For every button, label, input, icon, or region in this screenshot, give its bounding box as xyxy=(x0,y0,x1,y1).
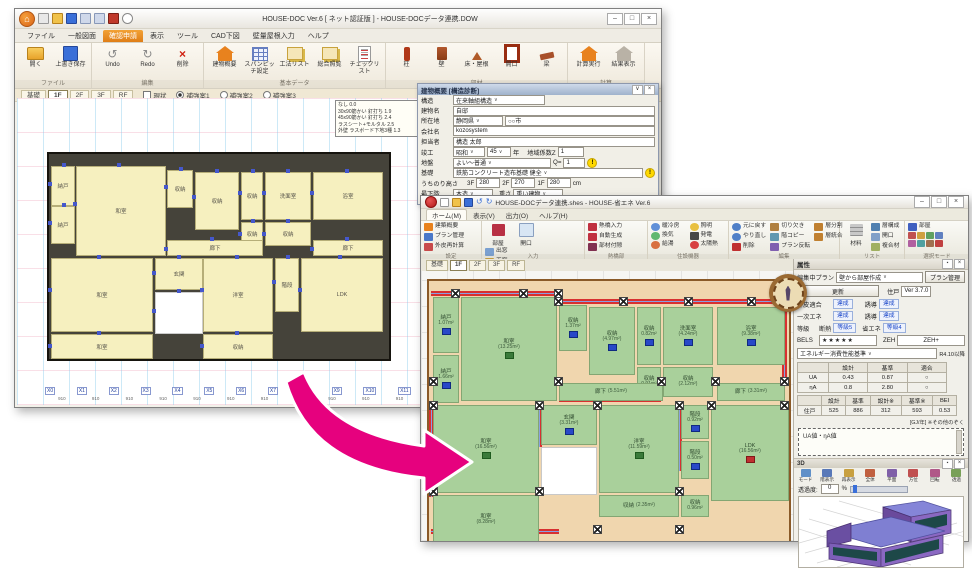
room[interactable]: 階段0.50m² xyxy=(681,441,709,479)
ribbon-group-file: 開く 上書き保存 ファイル xyxy=(15,43,92,88)
equipment-icon xyxy=(691,463,700,470)
flag-icon xyxy=(588,243,597,251)
notch-button[interactable]: 切り欠き xyxy=(770,222,810,231)
room[interactable]: 玄関(3.31m²) xyxy=(541,405,597,445)
layer-split-button[interactable]: 層分割 xyxy=(814,222,842,231)
layer-structure-button[interactable]: 層構成 xyxy=(871,222,899,231)
redo-icon[interactable]: ↻ xyxy=(486,196,493,208)
folder-icon xyxy=(27,47,44,60)
new-file-icon[interactable] xyxy=(38,13,49,24)
mode-icon[interactable] xyxy=(917,240,925,247)
person-input[interactable]: 構造 太郎 xyxy=(453,137,655,147)
joint-marker xyxy=(519,289,528,298)
tab-tools[interactable]: ツール xyxy=(171,30,204,42)
back-window-title: HOUSE-DOC Ver.6 [ ネット認証版 ] - HOUSE-DOCデー… xyxy=(136,14,604,24)
composite-icon xyxy=(871,243,880,251)
layer-icon xyxy=(871,223,880,231)
show-results-button[interactable]: 結果表示 xyxy=(607,45,640,69)
opening-icon xyxy=(871,233,880,241)
era-select[interactable]: 昭和∨ xyxy=(453,147,485,157)
layers-icon xyxy=(850,224,863,236)
company-input[interactable]: kozosystem xyxy=(453,126,655,136)
ua-value-box[interactable]: UA値・ηA値 xyxy=(798,428,964,456)
front-titlebar: ↺ ↻ HOUSE-DOCデータ連携.shes - HOUSE-省エネ Ver.… xyxy=(421,196,968,209)
roof-icon xyxy=(472,52,482,60)
joint-marker xyxy=(711,377,720,386)
tab-kakunin-shinsei[interactable]: 確認申請 xyxy=(103,30,143,42)
opacity-slider[interactable] xyxy=(850,486,908,493)
room[interactable]: 収納 xyxy=(195,172,239,230)
mode-icon[interactable] xyxy=(908,232,916,239)
panel-titlebar: 建物概要 [構造診断] ∨× xyxy=(418,84,658,95)
plan-select[interactable]: 壁から部屋作成∨ xyxy=(836,272,923,283)
app-icon-housedoc: ⌂ xyxy=(19,11,35,27)
opening-button[interactable]: 開口 xyxy=(495,45,528,69)
front-window-title: HOUSE-DOCデータ連携.shes - HOUSE-省エネ Ver.6 xyxy=(495,197,650,207)
delete-button[interactable]: 削除 xyxy=(732,242,766,251)
ribbon-group-basic-data: 建物概要 スパンピッチ設定 工法リスト 総合照覧 チェックリスト 基本データ xyxy=(204,43,386,88)
flag-icon xyxy=(588,233,597,241)
room[interactable]: 和室 xyxy=(76,166,166,256)
tab-output[interactable]: 出力(O) xyxy=(501,210,533,220)
room[interactable]: 収納(2.35m²) xyxy=(599,495,679,517)
ventilation-button[interactable]: 換気 xyxy=(651,231,687,240)
unit-note: [GJ/年] ※その他のぞく xyxy=(794,418,968,426)
panel-close-button[interactable]: × xyxy=(644,85,655,95)
room-input-button[interactable]: 部屋 xyxy=(485,222,511,247)
beam-icon xyxy=(539,52,554,61)
front-ribbon: 建築概要 プラン管理 外皮再計算 設定 部屋 開口 出窓 天窓 床 入力 熱橋入… xyxy=(421,221,968,262)
floor-roof-button[interactable]: 床・屋根 xyxy=(460,45,493,69)
equipment-icon xyxy=(442,328,451,335)
room[interactable]: 和室(16.56m²) xyxy=(433,405,539,493)
front-window: ↺ ↻ HOUSE-DOCデータ連携.shes - HOUSE-省エネ Ver.… xyxy=(420,195,969,542)
mode-icon[interactable] xyxy=(908,240,916,247)
opacity-row: 透過度: 0 % xyxy=(794,484,968,494)
equipment-icon xyxy=(645,339,654,346)
minimize-button[interactable]: – xyxy=(607,13,623,25)
mode-icon[interactable] xyxy=(935,232,943,239)
ground-select[interactable]: よい～普通∨ xyxy=(453,158,551,168)
tatami-icon xyxy=(635,452,644,459)
minimize-button[interactable]: – xyxy=(914,196,930,208)
joint-marker xyxy=(535,401,544,410)
house-icon xyxy=(424,223,433,231)
room[interactable]: 洋室(11.59m²) xyxy=(599,405,679,493)
ribbon-group-equipment: 暖冷房 照明 換気 発電 給湯 太陽熱 住設機器 xyxy=(648,221,729,261)
maximize-button[interactable]: □ xyxy=(931,196,947,208)
ribbon-group-select-mode: 部屋 選択モード xyxy=(905,221,968,261)
floppy-icon xyxy=(63,46,78,61)
new-file-icon[interactable] xyxy=(440,198,449,207)
open-file-icon[interactable] xyxy=(52,13,63,24)
joint-marker xyxy=(593,525,602,534)
ribbon-group-settings: 建築概要 プラン管理 外皮再計算 設定 xyxy=(421,221,482,261)
room[interactable]: 収納 xyxy=(241,172,263,220)
joint-marker xyxy=(657,377,666,386)
bels-stars: ★★★★★ xyxy=(819,335,877,346)
tab-view[interactable]: 表示(V) xyxy=(468,210,500,220)
window-icon xyxy=(519,223,534,237)
save-icon[interactable] xyxy=(464,198,473,207)
orientation-button[interactable]: 方位 xyxy=(904,469,923,483)
panel-collapse-button[interactable]: ∨ xyxy=(632,85,643,95)
composite-button[interactable]: 複合材 xyxy=(871,242,899,251)
panel-close-button[interactable]: × xyxy=(954,259,965,269)
joint-marker xyxy=(593,401,602,410)
ribbon-group-edit: ↺Undo ↻Redo ×削除 編集 xyxy=(92,43,204,88)
undo-button[interactable]: 元に戻す xyxy=(732,222,766,231)
floor-tab-1f[interactable]: 1F xyxy=(450,260,467,271)
envelope-table: 設計基準適合 UA0.430.87○ ηA0.82.80○ xyxy=(797,362,947,393)
mode-icon[interactable] xyxy=(926,232,934,239)
rotate-button[interactable]: 回転 xyxy=(925,469,944,483)
result-house-icon xyxy=(617,53,631,61)
tab-help[interactable]: ヘルプ xyxy=(302,30,335,42)
back-floor-plan[interactable]: 納戸 和室 収納 収納 収納 洗面室 浴室 納戸 収納 収納 廊下 廊下 和室 … xyxy=(47,152,391,361)
ribbon-group-list: 材料 層構成 開口 複合材 リスト xyxy=(840,221,905,261)
layer-merge-button[interactable]: 層統合 xyxy=(814,232,842,241)
status-badge: 達成 xyxy=(833,311,853,321)
panel-pin-button[interactable]: ▪ xyxy=(942,259,953,269)
entrance-porch xyxy=(541,447,597,495)
opening-input-button[interactable]: 開口 xyxy=(513,222,539,247)
status-badge: 達成 xyxy=(879,299,899,309)
lamp-icon xyxy=(690,223,699,231)
height-3f-input[interactable]: 280 xyxy=(476,178,500,188)
room-book-icon xyxy=(492,224,505,236)
opening-icon xyxy=(504,44,520,63)
front-window-controls: – □ × xyxy=(914,196,964,208)
tab-help[interactable]: ヘルプ(H) xyxy=(534,210,573,220)
zone-factor-input[interactable]: 1 xyxy=(558,147,584,157)
tab-home[interactable]: ホーム(M) xyxy=(426,209,467,220)
back-titlebar: ⌂ HOUSE-DOC Ver.6 [ ネット認証版 ] - HOUSE-DOC… xyxy=(15,9,661,29)
screenshot-canvas: { "icons": { "house": "⌂", "undo": "↺", … xyxy=(0,0,972,528)
ribbon-group-parts: 柱 壁 床・屋根 開口 梁 部材 xyxy=(386,43,568,88)
pillar-button[interactable]: 柱 xyxy=(390,45,423,69)
joint-marker xyxy=(684,297,693,306)
year-select[interactable]: 45∨ xyxy=(487,147,511,157)
house-icon xyxy=(218,53,232,61)
joint-marker xyxy=(780,401,789,410)
room[interactable]: 和室(13.25m²) xyxy=(461,297,557,401)
save-icon[interactable] xyxy=(66,13,77,24)
joint-marker xyxy=(747,297,756,306)
refresh-button[interactable]: 再表示 xyxy=(839,469,858,483)
flip-icon xyxy=(770,243,779,251)
joint-marker xyxy=(780,377,789,386)
front-menu-tabs: ホーム(M) 表示(V) 出力(O) ヘルプ(H) xyxy=(421,209,968,221)
maximize-button[interactable]: □ xyxy=(624,13,640,25)
tab-file[interactable]: ファイル xyxy=(21,30,61,42)
beam-button[interactable]: 梁 xyxy=(530,45,563,69)
method-list-button[interactable]: 工法リスト xyxy=(278,45,311,69)
tab-wall-roof-input[interactable]: 壁量屋根入力 xyxy=(247,30,301,42)
mode-button[interactable]: モード xyxy=(796,469,815,483)
panel-pin-button[interactable]: ▪ xyxy=(942,459,953,469)
room[interactable]: 収納0.82m² xyxy=(637,307,661,365)
tab-cad-underlay[interactable]: CAD下図 xyxy=(205,30,246,42)
redo-button[interactable]: やり直し xyxy=(732,232,766,241)
room[interactable]: 階段0.92m² xyxy=(681,405,709,439)
attribute-panel: 属性 ▪× 編集中プラン 壁から部屋作成∨ プラン管理 更新 住戸 Ver 3.… xyxy=(793,259,968,541)
solar-panel-icon xyxy=(690,232,699,240)
opacity-input[interactable]: 0 xyxy=(821,484,839,494)
plan-flip-button[interactable]: プラン反転 xyxy=(770,242,810,251)
foundation-select[interactable]: 鉄筋コンクリート造布基礎 健全∨ xyxy=(453,168,643,178)
room[interactable]: LDK xyxy=(301,258,383,332)
room[interactable]: 納戸 xyxy=(51,206,75,244)
warning-icon[interactable]: ! xyxy=(645,168,655,178)
ribbon-group-input: 部屋 開口 出窓 天窓 床 入力 xyxy=(482,221,585,261)
building-overview-button[interactable]: 建築概要 xyxy=(424,222,478,231)
list-window-icon xyxy=(287,47,303,60)
room[interactable]: 収納 xyxy=(203,334,273,359)
prefecture-select[interactable]: 静岡県∨ xyxy=(453,116,503,126)
solar-heat-button[interactable]: 太陽熱 xyxy=(690,240,726,249)
joint-marker xyxy=(554,297,563,306)
room[interactable]: 納戸 xyxy=(51,166,75,206)
close-button[interactable]: × xyxy=(948,196,964,208)
room[interactable]: 収納1.37m² xyxy=(559,305,587,351)
equipment-icon xyxy=(442,382,451,389)
delete-button[interactable]: ×削除 xyxy=(166,45,199,69)
equipment-icon xyxy=(747,339,756,346)
hvac-icon xyxy=(651,223,660,231)
room[interactable]: 階段 xyxy=(275,258,299,312)
search-icon[interactable] xyxy=(122,13,133,24)
building-overview-panel: 建物概要 [構造診断] ∨× 構造 在来軸組構造∨ 建物名 自邸 所在地 静岡県… xyxy=(417,83,659,205)
auto-generate-button[interactable]: 自動生成 xyxy=(588,232,644,241)
status-badge: 達成 xyxy=(833,299,853,309)
room[interactable]: 和室 xyxy=(51,258,153,332)
merge-icon xyxy=(814,233,823,241)
joint-marker xyxy=(619,297,628,306)
redo-icon[interactable] xyxy=(94,13,105,24)
room[interactable]: 廊下 xyxy=(313,240,383,256)
overview-button[interactable]: 総合照覧 xyxy=(313,45,346,69)
back-window-controls: – □ × xyxy=(607,13,657,25)
boiler-icon xyxy=(651,241,660,249)
member-gap-button[interactable]: 部材付隙 xyxy=(588,242,644,251)
redo-icon xyxy=(732,233,741,241)
app-icon-shoene xyxy=(425,196,437,208)
list-window-icon xyxy=(322,47,338,60)
room[interactable]: 収納 xyxy=(265,222,311,246)
floor-tab-3f[interactable]: 3F xyxy=(488,260,505,271)
room[interactable]: 収納 xyxy=(167,170,193,208)
3d-house-render xyxy=(799,497,964,567)
grade-badge: 等級5 xyxy=(833,323,856,333)
select-room-button[interactable]: 部屋 xyxy=(908,222,966,231)
select-icon xyxy=(908,223,917,231)
3d-toolbar: モード 階表示 再表示 全体 平面 方位 回転 透過 xyxy=(794,468,968,484)
front-floor-plan[interactable]: 納戸1.07m² 和室(13.25m²) 収納1.37m² 収納(4.97m²)… xyxy=(427,279,791,541)
recalc-envelope-button[interactable]: 外皮再計算 xyxy=(424,242,478,251)
delete-icon xyxy=(732,243,741,251)
copy-icon xyxy=(770,233,779,241)
city-input[interactable]: ○○市 xyxy=(505,116,655,126)
floor-tab-2f[interactable]: 2F xyxy=(469,260,486,271)
kitchen-icon xyxy=(746,456,755,463)
thermal-bridge-input-button[interactable]: 熱橋入力 xyxy=(588,222,644,231)
calc-house-icon xyxy=(582,53,596,61)
entrance-porch xyxy=(155,292,203,334)
room[interactable]: 廊下 xyxy=(167,240,263,256)
overwrite-save-button[interactable]: 上書き保存 xyxy=(54,45,87,69)
hvac-button[interactable]: 暖冷房 xyxy=(651,222,687,231)
ribbon-group-thermal: 熱橋入力 自動生成 部材付隙 熱橋部 xyxy=(585,221,648,261)
plan-view-button[interactable]: 平面 xyxy=(882,469,901,483)
document-icon xyxy=(358,46,371,62)
room[interactable]: 洗面室 xyxy=(265,172,311,220)
ribbon-group-calc: 計算実行 結果表示 計算 xyxy=(568,43,645,88)
energy-standard-select[interactable]: エネルギー消費性能基準∨ xyxy=(797,348,937,359)
structure-select[interactable]: 在来軸組構造∨ xyxy=(453,95,545,105)
plan-icon xyxy=(424,233,433,241)
status-badge: 達成 xyxy=(879,311,899,321)
room[interactable]: 収納0.96m² xyxy=(681,495,709,517)
undo-icon xyxy=(732,223,741,231)
whole-view-button[interactable]: 全体 xyxy=(861,469,880,483)
sun-icon xyxy=(690,241,699,249)
joint-marker xyxy=(675,487,684,496)
wall-button[interactable]: 壁 xyxy=(425,45,458,69)
tatami-icon xyxy=(482,452,491,459)
equipment-icon xyxy=(684,339,693,346)
material-list-button[interactable]: 材料 xyxy=(843,222,869,247)
redo-icon: ↻ xyxy=(142,48,152,60)
delete-icon: × xyxy=(179,48,186,60)
3d-panel-header: 3D ▪× xyxy=(794,458,968,468)
floor-copy-button[interactable]: 階コピー xyxy=(770,232,810,241)
warning-icon[interactable]: ! xyxy=(587,158,597,168)
room[interactable]: LDK(16.56m²) xyxy=(711,405,789,501)
lighting-button[interactable]: 照明 xyxy=(690,222,726,231)
tab-general-drawing[interactable]: 一般図面 xyxy=(62,30,102,42)
update-button[interactable]: 更新 xyxy=(797,285,879,297)
q-input[interactable]: 1 xyxy=(563,158,585,168)
joint-marker xyxy=(451,289,460,298)
back-menu-tabs: ファイル 一般図面 確認申請 表示 ツール CAD下図 壁量屋根入力 ヘルプ xyxy=(15,29,661,43)
room[interactable]: 廊下(3.31m²) xyxy=(717,383,785,401)
floor-display-button[interactable]: 階表示 xyxy=(818,469,837,483)
equipment-icon xyxy=(608,344,617,351)
room[interactable]: 洗面室(4.24m²) xyxy=(663,307,713,365)
grade-badge: 等級4 xyxy=(883,323,906,333)
panel-close-button[interactable]: × xyxy=(954,459,965,469)
room[interactable]: 玄関 xyxy=(155,258,203,290)
ribbon-group-edit: 元に戻す やり直し 削除 切り欠き 階コピー プラン反転 層分割 層統合 編集 xyxy=(729,221,840,261)
fan-icon xyxy=(651,232,660,240)
pillar-icon xyxy=(404,47,410,61)
equipment-icon xyxy=(565,428,574,435)
room[interactable]: 収納(2.12m²) xyxy=(663,367,713,397)
print-icon[interactable] xyxy=(108,13,119,24)
room[interactable]: 洋室 xyxy=(203,258,273,332)
front-drawing-area[interactable]: 納戸1.07m² 和室(13.25m²) 収納1.37m² 収納(4.97m²)… xyxy=(421,271,793,541)
3d-viewport[interactable] xyxy=(798,496,964,568)
energy-table: 設計基準設計※基準※BEI 住戸5258863125930.53 xyxy=(797,395,957,416)
joint-marker xyxy=(675,401,684,410)
room[interactable]: 収納(4.97m²) xyxy=(589,307,635,375)
room[interactable]: 和室(8.28m²) xyxy=(433,495,539,541)
joint-marker xyxy=(707,401,716,410)
joint-marker xyxy=(535,487,544,496)
panel-titlebar: 属性 ▪× xyxy=(794,259,968,270)
room[interactable]: 廊下(5.51m²) xyxy=(559,383,663,401)
opening-list-button[interactable]: 開口 xyxy=(871,232,899,241)
checklist-button[interactable]: チェックリスト xyxy=(348,45,381,75)
room[interactable]: 和室 xyxy=(51,334,153,359)
joint-marker xyxy=(429,401,438,410)
version-box: Ver 3.7.0 xyxy=(901,286,931,297)
joint-marker xyxy=(554,377,563,386)
mode-icon[interactable] xyxy=(917,232,925,239)
zeh-box: ZEH+ xyxy=(897,335,965,346)
scrollbar[interactable] xyxy=(956,430,962,454)
hot-water-button[interactable]: 給湯 xyxy=(651,240,687,249)
span-pitch-button[interactable]: スパンピッチ設定 xyxy=(243,45,276,75)
open-button[interactable]: 開く xyxy=(19,45,52,69)
tab-view[interactable]: 表示 xyxy=(144,30,170,42)
room[interactable]: 納戸1.07m² xyxy=(433,297,459,353)
flag-icon xyxy=(588,223,597,231)
run-calculation-button[interactable]: 計算実行 xyxy=(572,45,605,69)
height-1f-input[interactable]: 280 xyxy=(547,178,571,188)
equipment-icon xyxy=(691,425,700,432)
room[interactable]: 浴室 xyxy=(313,172,383,220)
compass-icon xyxy=(769,274,807,312)
floor-tab-kiso[interactable]: 基礎 xyxy=(426,260,448,271)
split-icon xyxy=(814,223,823,231)
building-name-input[interactable]: 自邸 xyxy=(453,106,655,116)
joint-marker xyxy=(429,377,438,386)
notch-icon xyxy=(770,223,779,231)
joint-marker xyxy=(429,487,438,496)
plan-manage-button[interactable]: プラン管理 xyxy=(925,271,965,283)
undo-icon: ↺ xyxy=(107,48,117,60)
power-gen-button[interactable]: 発電 xyxy=(690,231,726,240)
joint-marker xyxy=(675,525,684,534)
mode-icon[interactable] xyxy=(926,240,934,247)
undo-icon[interactable] xyxy=(80,13,91,24)
undo-button[interactable]: ↺Undo xyxy=(96,45,129,69)
transparency-button[interactable]: 透過 xyxy=(947,469,966,483)
height-2f-input[interactable]: 270 xyxy=(511,178,535,188)
room[interactable]: 浴室(9.38m²) xyxy=(717,307,785,365)
open-file-icon[interactable] xyxy=(452,198,461,207)
tatami-icon xyxy=(505,352,514,359)
grid-icon xyxy=(252,47,268,61)
building-overview-button[interactable]: 建物概要 xyxy=(208,45,241,69)
mode-icon[interactable] xyxy=(935,240,943,247)
close-button[interactable]: × xyxy=(641,13,657,25)
plan-manage-button[interactable]: プラン管理 xyxy=(424,232,478,241)
recalc-icon xyxy=(424,243,433,251)
undo-icon[interactable]: ↺ xyxy=(476,196,483,208)
redo-button[interactable]: ↻Redo xyxy=(131,45,164,69)
equipment-icon xyxy=(569,331,578,338)
wall-icon xyxy=(437,47,447,60)
floor-tab-rf[interactable]: RF xyxy=(507,260,525,271)
